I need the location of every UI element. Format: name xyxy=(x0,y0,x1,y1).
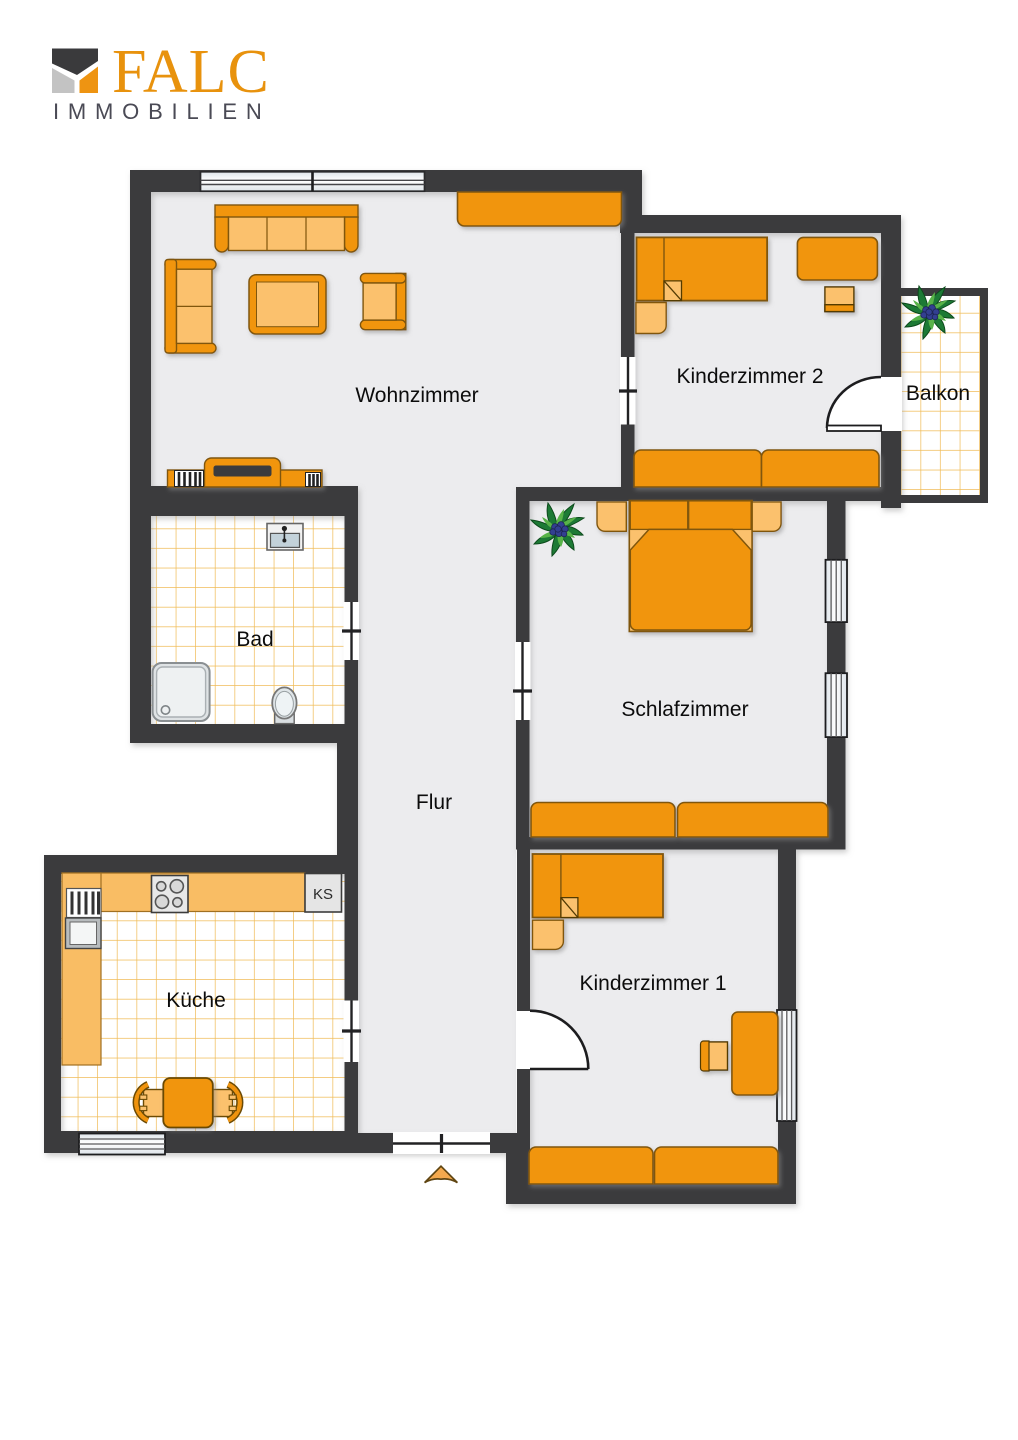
svg-text:IMMOBILIEN: IMMOBILIEN xyxy=(53,99,271,124)
svg-text:Küche: Küche xyxy=(166,989,226,1012)
svg-text:Kinderzimmer 2: Kinderzimmer 2 xyxy=(676,365,823,388)
svg-text:FALC: FALC xyxy=(112,38,270,106)
svg-text:Wohnzimmer: Wohnzimmer xyxy=(355,384,478,407)
svg-text:Flur: Flur xyxy=(416,791,452,814)
svg-text:Balkon: Balkon xyxy=(906,382,970,405)
svg-text:Bad: Bad xyxy=(236,628,273,651)
svg-text:Schlafzimmer: Schlafzimmer xyxy=(621,698,748,721)
svg-text:KS: KS xyxy=(313,886,333,903)
svg-text:Kinderzimmer 1: Kinderzimmer 1 xyxy=(579,972,726,995)
